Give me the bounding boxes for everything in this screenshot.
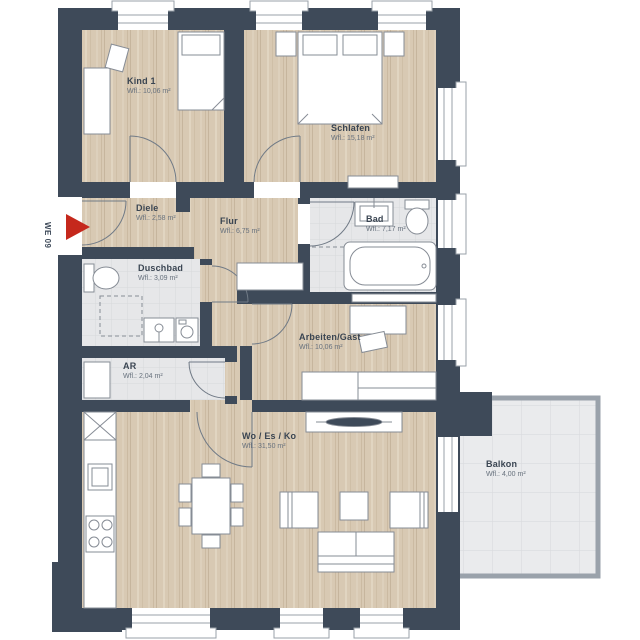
- shelf-ar: [84, 362, 110, 398]
- kitchen-shaft: [84, 412, 116, 440]
- wardrobe-flur: [237, 263, 303, 290]
- floorplan-drawing: [0, 0, 640, 640]
- sink-bad: [355, 198, 393, 226]
- sideboard-tv: [306, 412, 402, 432]
- balcony-door: [438, 437, 458, 512]
- wall-living-top-left: [82, 400, 190, 412]
- kitchen-sink: [88, 464, 112, 490]
- wall-kind1-schlafen: [224, 30, 244, 182]
- wall-balcony-corner: [436, 392, 492, 436]
- window: [280, 608, 323, 630]
- radiator-bad: [348, 176, 398, 188]
- wall-mid-a: [82, 182, 130, 198]
- window: [132, 608, 210, 630]
- wall-ar-right-bottom: [225, 396, 237, 404]
- floor-wohnen: [82, 412, 436, 608]
- window: [438, 305, 458, 360]
- sofabed-arbeiten: [302, 372, 436, 400]
- window: [118, 8, 168, 30]
- wall-left: [58, 8, 82, 608]
- armchair-right: [390, 492, 428, 528]
- sofa: [318, 532, 394, 572]
- stove: [86, 516, 114, 552]
- unit-label: WE 09: [43, 222, 52, 249]
- window: [438, 88, 458, 160]
- wall-bad-left-top: [298, 198, 310, 204]
- bed-kind1: [178, 32, 224, 110]
- washer: [176, 318, 198, 342]
- wall-duschbad-right-top: [200, 259, 212, 265]
- wall-ar-top: [82, 346, 237, 358]
- wall-arbeiten-left: [240, 346, 252, 400]
- floor-diele: [82, 198, 190, 247]
- wall-living-top-right: [252, 400, 436, 412]
- wall-duschbad-right: [200, 302, 212, 346]
- wall-mid-b: [176, 182, 254, 198]
- bathtub: [344, 242, 436, 290]
- desk-kind1: [84, 68, 110, 134]
- wall-ext-bottom: [52, 610, 122, 632]
- window: [378, 8, 426, 30]
- window: [360, 608, 403, 630]
- window: [438, 200, 458, 248]
- nightstand-right: [384, 32, 404, 56]
- sink-duschbad: [144, 318, 174, 342]
- armchair-left: [280, 492, 318, 528]
- radiator-bad2: [352, 294, 436, 302]
- wall-duschbad-top: [82, 247, 194, 259]
- desk-arbeiten: [350, 306, 406, 334]
- wall-diele-stub: [176, 198, 190, 212]
- wall-ar-right-top: [225, 346, 237, 362]
- floorplan-canvas: Kind 1Wfl.: 10,06 m²SchlafenWfl.: 15,18 …: [0, 0, 640, 640]
- nightstand-left: [276, 32, 296, 56]
- bed-schlafen: [298, 32, 382, 124]
- window: [256, 8, 302, 30]
- toilet-bad: [405, 200, 429, 234]
- coffee-table: [340, 492, 368, 520]
